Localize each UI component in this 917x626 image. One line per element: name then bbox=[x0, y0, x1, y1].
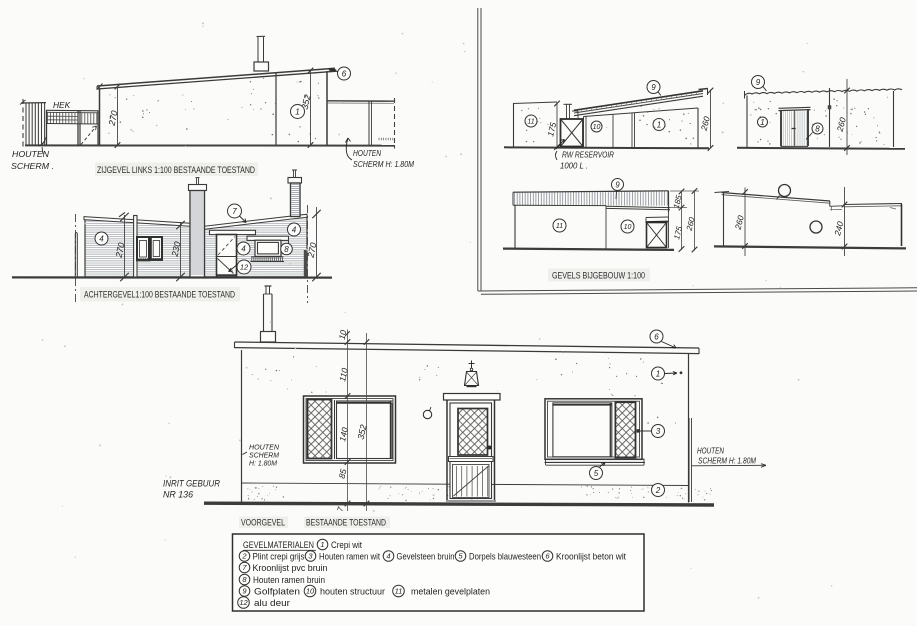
svg-text:H: 1.80M: H: 1.80M bbox=[249, 461, 277, 468]
svg-text:Gevelsteen bruin: Gevelsteen bruin bbox=[397, 551, 455, 561]
svg-text:GEVELMATERIALEN: GEVELMATERIALEN bbox=[243, 540, 314, 550]
svg-text:HEK: HEK bbox=[53, 100, 71, 110]
svg-text:4: 4 bbox=[386, 552, 390, 561]
svg-text:5: 5 bbox=[594, 469, 599, 478]
svg-text:8: 8 bbox=[284, 245, 289, 254]
svg-text:4: 4 bbox=[292, 225, 297, 234]
svg-text:SCHERM H: 1.80M: SCHERM H: 1.80M bbox=[353, 159, 415, 169]
svg-text:9: 9 bbox=[651, 83, 656, 92]
svg-text:GEVELS BIJGEBOUW 1:100: GEVELS BIJGEBOUW 1:100 bbox=[552, 271, 645, 281]
svg-text:Crepi wit: Crepi wit bbox=[331, 540, 363, 550]
svg-text:ZIJGEVEL LINKS 1:100 BESTAANDE: ZIJGEVEL LINKS 1:100 BESTAANDE TOESTAND bbox=[97, 165, 255, 175]
svg-text:4: 4 bbox=[99, 234, 104, 243]
svg-text:10: 10 bbox=[306, 587, 315, 596]
svg-text:1000 L .: 1000 L . bbox=[560, 162, 588, 171]
svg-text:11: 11 bbox=[395, 587, 403, 596]
svg-text:Plint crepi grijs: Plint crepi grijs bbox=[253, 551, 306, 561]
svg-text:11: 11 bbox=[556, 223, 563, 230]
svg-text:12: 12 bbox=[240, 263, 249, 272]
svg-text:VOORGEVEL: VOORGEVEL bbox=[241, 518, 285, 528]
svg-text:1: 1 bbox=[760, 118, 764, 127]
svg-text:9: 9 bbox=[756, 78, 761, 87]
svg-text:8: 8 bbox=[815, 124, 820, 133]
svg-text:Kroonlijst beton wit: Kroonlijst beton wit bbox=[556, 551, 627, 561]
svg-text:11: 11 bbox=[527, 119, 534, 126]
svg-text:HOUTEN: HOUTEN bbox=[249, 445, 280, 452]
svg-text:10: 10 bbox=[593, 124, 601, 131]
svg-text:1: 1 bbox=[295, 107, 299, 116]
svg-text:Houten ramen wit: Houten ramen wit bbox=[319, 551, 380, 561]
svg-text:BESTAANDE TOESTAND: BESTAANDE TOESTAND bbox=[306, 518, 386, 528]
svg-text:NR 136: NR 136 bbox=[163, 490, 194, 501]
svg-text:INRIT GEBUUR: INRIT GEBUUR bbox=[163, 479, 220, 490]
svg-text:6: 6 bbox=[342, 69, 347, 78]
svg-text:9: 9 bbox=[615, 180, 620, 189]
svg-text:metalen gevelplaten: metalen gevelplaten bbox=[411, 586, 490, 596]
svg-text:1: 1 bbox=[657, 120, 661, 129]
svg-text:2: 2 bbox=[655, 486, 661, 495]
svg-text:RW RESERVOIR: RW RESERVOIR bbox=[562, 151, 614, 160]
svg-text:10: 10 bbox=[624, 224, 632, 231]
svg-text:HOUTEN: HOUTEN bbox=[697, 447, 724, 456]
svg-text:ACHTERGEVEL1:100 BESTAANDE TOE: ACHTERGEVEL1:100 BESTAANDE TOESTAND bbox=[84, 290, 235, 300]
svg-text:Houten ramen bruin: Houten ramen bruin bbox=[253, 575, 325, 585]
svg-text:Golfplaten: Golfplaten bbox=[254, 586, 300, 596]
svg-text:3: 3 bbox=[656, 427, 661, 436]
svg-text:Dorpels blauwesteen: Dorpels blauwesteen bbox=[469, 551, 541, 561]
svg-text:houten structuur: houten structuur bbox=[320, 586, 385, 596]
svg-text:alu deur: alu deur bbox=[254, 598, 290, 608]
svg-text:HOUTEN: HOUTEN bbox=[12, 149, 50, 159]
svg-text:HOUTEN: HOUTEN bbox=[353, 148, 382, 158]
svg-text:4: 4 bbox=[241, 244, 246, 253]
svg-text:Kroonlijst pvc bruin: Kroonlijst pvc bruin bbox=[253, 563, 328, 573]
svg-text:SCHERM H: 1.80M: SCHERM H: 1.80M bbox=[698, 457, 756, 466]
svg-text:1: 1 bbox=[656, 369, 660, 378]
svg-text:7: 7 bbox=[232, 207, 237, 216]
svg-text:1: 1 bbox=[320, 540, 324, 549]
svg-text:SCHERM: SCHERM bbox=[249, 453, 279, 460]
svg-text:12: 12 bbox=[239, 598, 248, 607]
svg-text:SCHERM .: SCHERM . bbox=[11, 161, 54, 171]
svg-text:6: 6 bbox=[654, 332, 659, 341]
svg-text:2: 2 bbox=[241, 552, 247, 561]
